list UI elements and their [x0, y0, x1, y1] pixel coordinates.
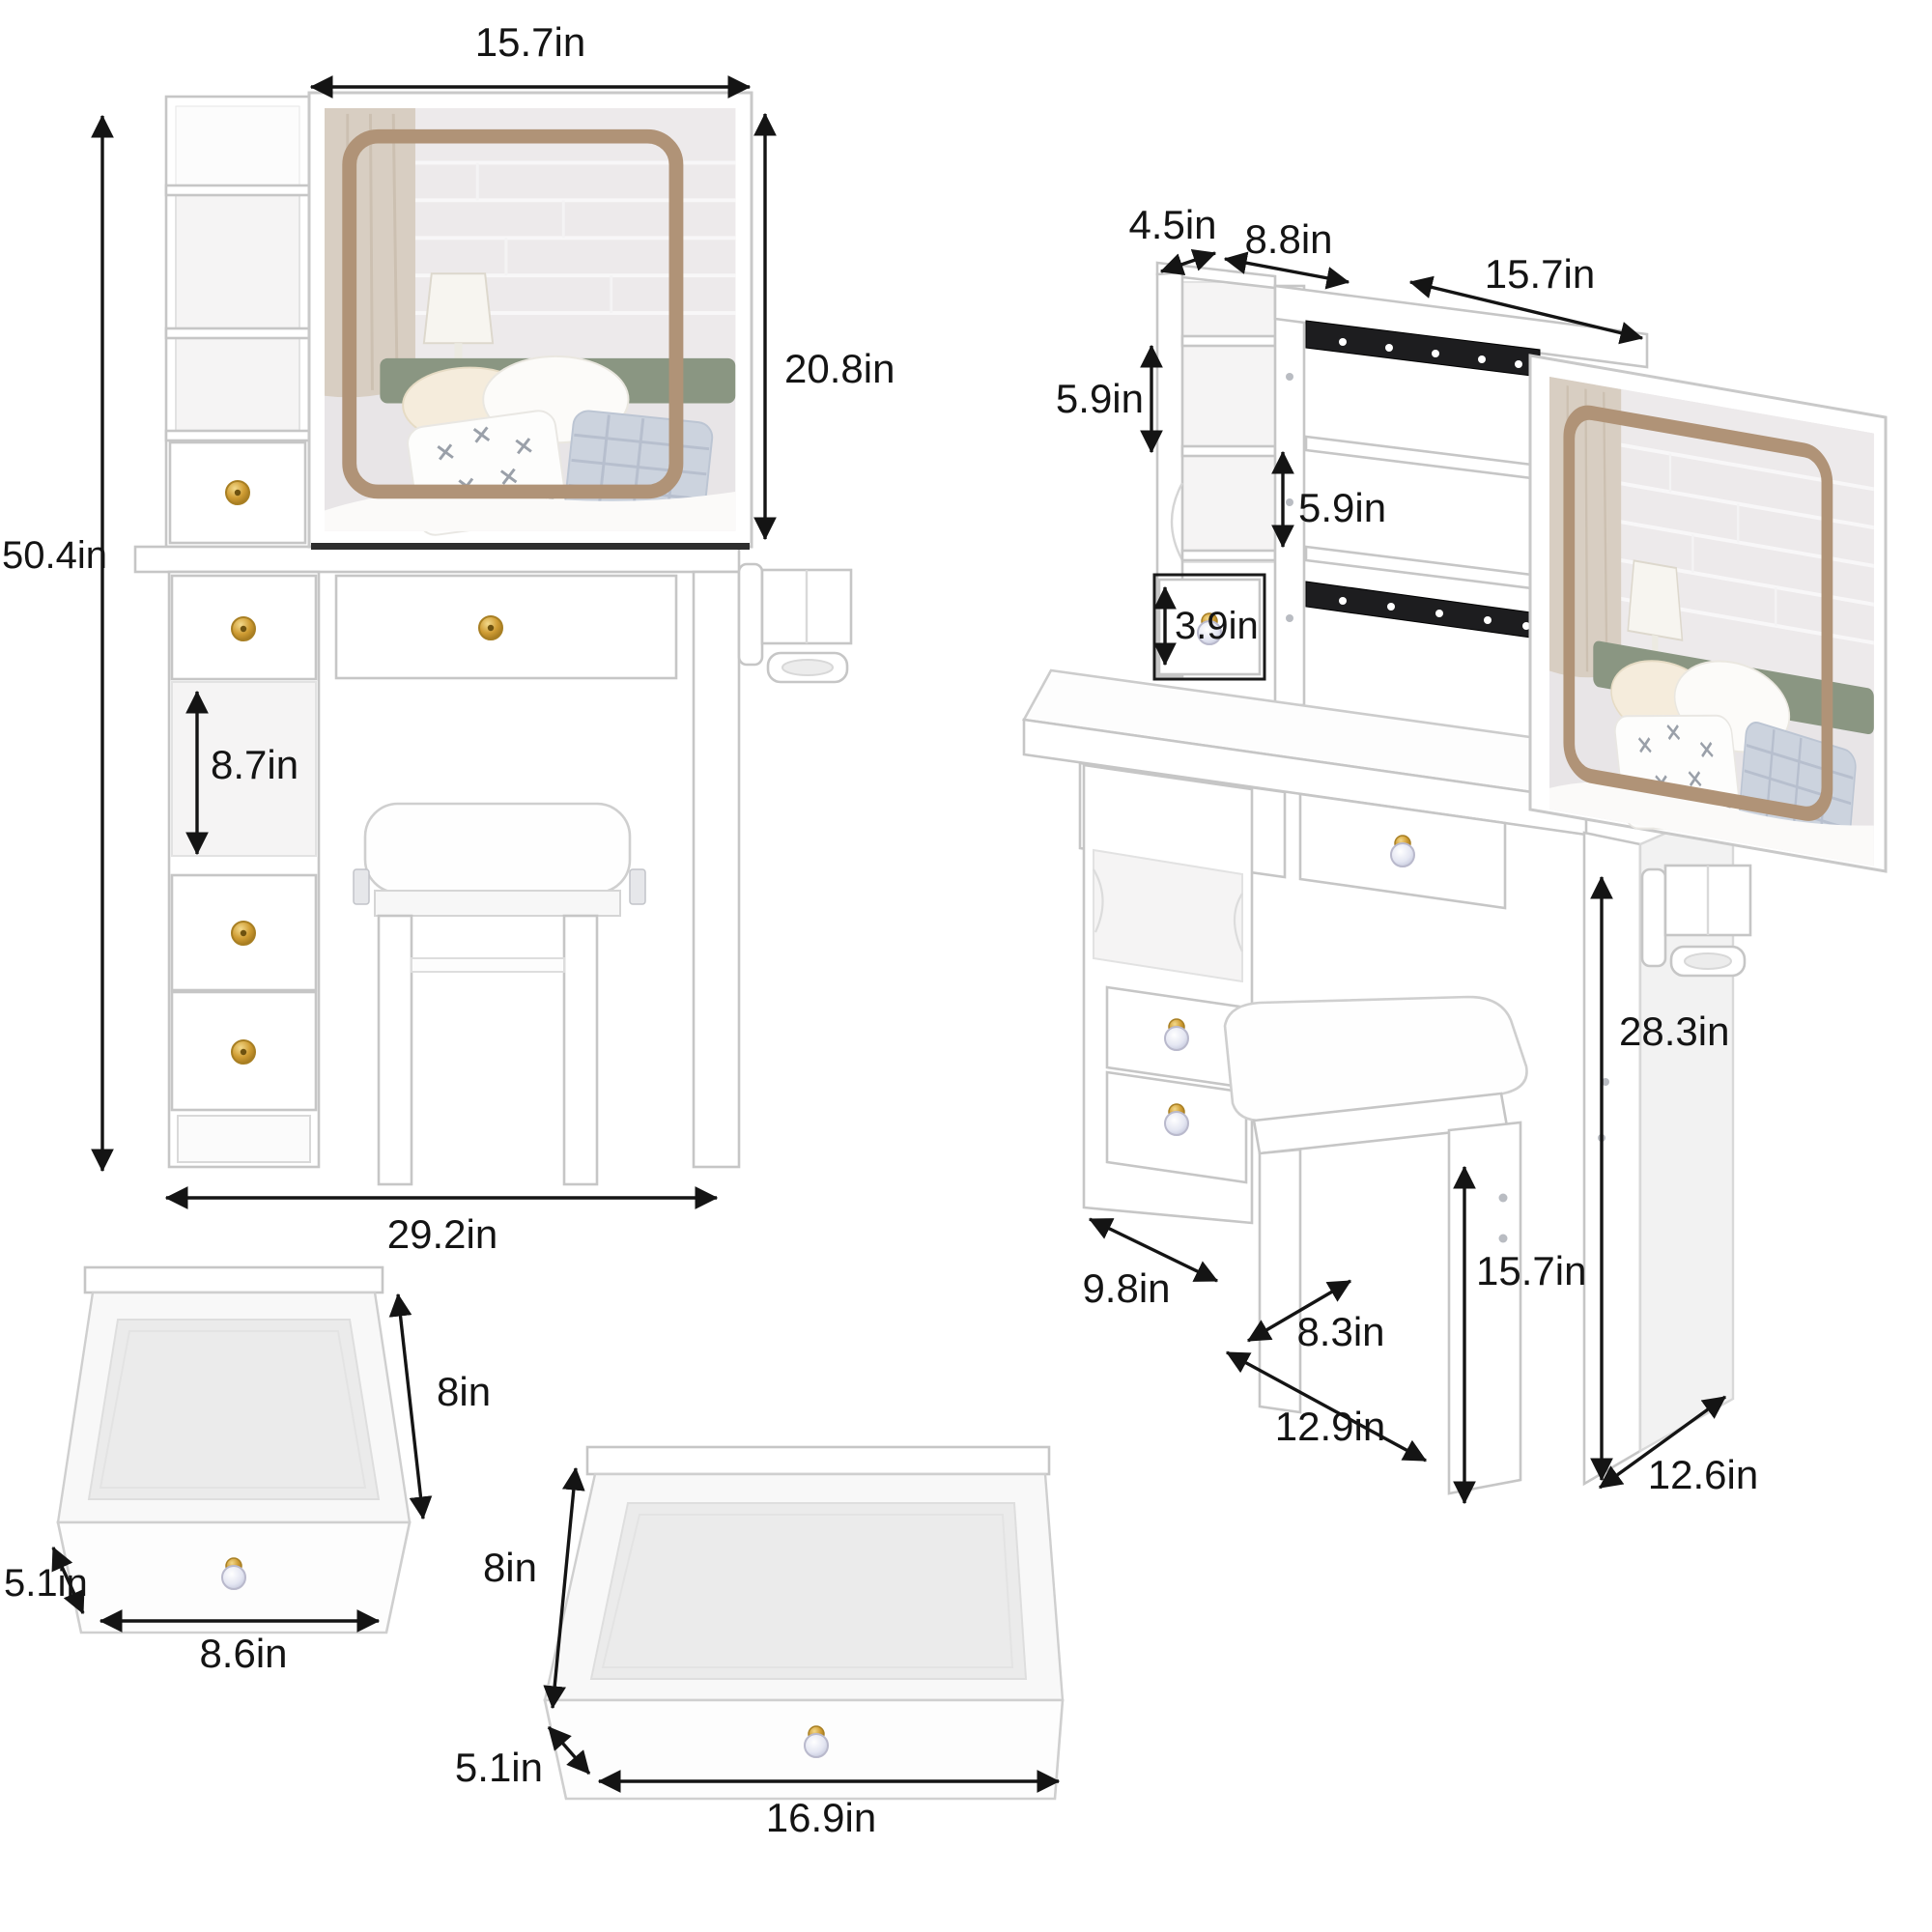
- side-cup-holder: [1642, 866, 1750, 976]
- metal-bracket: [630, 869, 645, 904]
- shelf-board: [1182, 551, 1275, 560]
- drawer-knob: [232, 922, 255, 945]
- drawer-back-board: [85, 1267, 383, 1293]
- angled-view: 4.5in 8.8in 15.7in 5.9in 5.9in 3.9in 28.…: [1024, 202, 1886, 1503]
- dim-label-front-overall-width: 29.2in: [387, 1211, 497, 1257]
- drawer-knob: [226, 481, 249, 504]
- drawer-floor: [591, 1503, 1026, 1679]
- dim-label-small-drawer-height: 5.1in: [4, 1562, 88, 1605]
- cabinet-base: [178, 1116, 310, 1162]
- dim-label-side-panel-depth: 12.6in: [1648, 1452, 1758, 1497]
- drawer-knob: [232, 617, 255, 640]
- dim-label-upper-shelf-height: 5.9in: [1056, 376, 1144, 421]
- dim-label-stool-height: 15.7in: [1476, 1248, 1586, 1293]
- stool-leg: [1449, 1122, 1520, 1493]
- mirror-reflection: [1549, 377, 1874, 872]
- drawer-floor: [89, 1320, 379, 1499]
- diagram-canvas: 15.7in 20.8in 50.4in 8.7in 29.2in: [0, 0, 1932, 1932]
- hutch-cubby: [176, 193, 299, 328]
- mirror-shadow: [311, 543, 750, 550]
- front-hutch-cabinet: [166, 97, 309, 547]
- open-shelf: [1094, 850, 1242, 981]
- desk-side-panel: [1584, 833, 1640, 1484]
- dim-label-top-shelf-depth: 4.5in: [1128, 202, 1216, 247]
- front-cup-holder: [739, 564, 851, 682]
- dim-label-small-drawer-width: 8.6in: [199, 1631, 287, 1676]
- small-drawer-view: 8in 5.1in 8.6in: [4, 1267, 491, 1676]
- dim-label-large-drawer-width: 16.9in: [766, 1795, 876, 1840]
- dim-label-cabinet-depth: 9.8in: [1082, 1265, 1170, 1311]
- mirror-reflection: [325, 108, 735, 537]
- large-drawer-view: 8in 5.1in 16.9in: [455, 1447, 1063, 1840]
- shelf-board: [1182, 446, 1275, 456]
- stool-leg: [564, 916, 597, 1184]
- drawer-knob: [479, 616, 502, 639]
- drawer-front: [545, 1700, 1063, 1799]
- dim-label-lower-shelf-height: 5.9in: [1298, 485, 1386, 530]
- front-stool: [354, 804, 645, 1184]
- dim-label-base-depth: 12.9in: [1275, 1404, 1385, 1449]
- dim-label-stool-depth: 8.3in: [1296, 1309, 1384, 1354]
- side-pedestal: [1084, 765, 1252, 1223]
- stool-cushion: [365, 804, 630, 893]
- dim-label-hutch-width: 8.8in: [1244, 216, 1332, 262]
- stool-base: [375, 891, 620, 916]
- desktop: [135, 547, 739, 572]
- front-view: 15.7in 20.8in 50.4in 8.7in 29.2in: [2, 19, 895, 1257]
- stool-rail: [412, 958, 564, 972]
- desk-drawer: [336, 576, 676, 678]
- hutch-cubby: [176, 106, 299, 185]
- front-mirror: [309, 93, 752, 550]
- dim-label-large-drawer-height: 5.1in: [455, 1745, 543, 1790]
- desk-side-panel: [694, 572, 739, 1167]
- product-dimension-diagram: 15.7in 20.8in 50.4in 8.7in 29.2in: [0, 0, 1932, 1932]
- dim-label-front-overall-height: 50.4in: [2, 534, 107, 577]
- dim-label-large-drawer-depth: 8in: [483, 1545, 537, 1590]
- metal-bracket: [354, 869, 369, 904]
- drawer-slide-rail: [1306, 582, 1559, 641]
- drawer-knob: [232, 1040, 255, 1064]
- hutch-cubby: [176, 336, 299, 431]
- dim-label-front-mirror-height: 20.8in: [784, 346, 895, 391]
- dim-label-front-mirror-width: 15.7in: [475, 19, 585, 65]
- shelf-board: [1182, 336, 1275, 346]
- drawer-back-board: [587, 1447, 1049, 1474]
- dim-label-small-drawer-depth: 8in: [437, 1369, 491, 1414]
- dim-label-front-shelf-height: 8.7in: [211, 742, 298, 787]
- dim-label-hutch-drawer-height: 3.9in: [1175, 605, 1259, 647]
- stool-leg: [379, 916, 412, 1184]
- dim-label-sliding-mirror-width: 15.7in: [1485, 251, 1595, 297]
- dim-label-tabletop-height: 28.3in: [1619, 1009, 1729, 1054]
- front-base-cabinet: [169, 572, 319, 1167]
- side-mirror: [1530, 355, 1886, 872]
